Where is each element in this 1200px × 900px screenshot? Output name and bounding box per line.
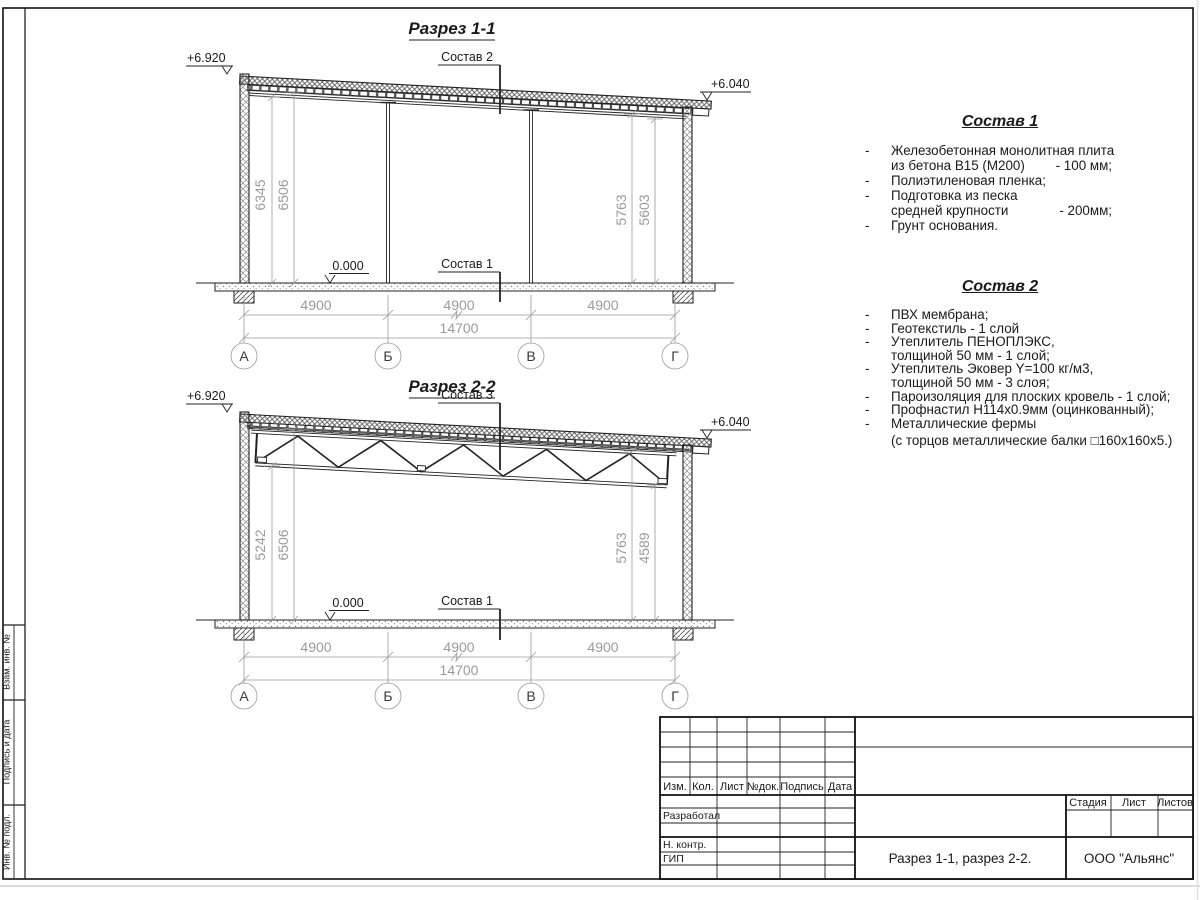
- note-line: -Геотекстиль - 1 слой: [830, 322, 1170, 336]
- tb-izm: Изм.: [663, 781, 687, 793]
- section2-floor: [196, 620, 734, 640]
- span-dim-2: 4900: [443, 639, 474, 655]
- elev-right-value: +6.040: [711, 415, 750, 429]
- tb-podpis: Подпись: [780, 781, 824, 793]
- dim-6506: 6506: [275, 529, 291, 560]
- title-block: Изм. Кол. Лист №док. Подпись Дата Разраб…: [660, 717, 1193, 879]
- note-line: -Грунт основания.: [830, 218, 1170, 233]
- span-dim-3: 4900: [587, 297, 618, 313]
- section1-zero-mark: 0.000: [325, 259, 369, 283]
- notes-sostav-1: Состав 1 -Железобетонная монолитная плит…: [830, 113, 1170, 233]
- roof-callout-text: Состав 3: [441, 388, 493, 402]
- span-dim-1: 4900: [300, 639, 331, 655]
- section1-roof: [239, 76, 711, 120]
- dim-5763: 5763: [613, 194, 629, 225]
- side-label-inv: Инв. № подл.: [2, 814, 12, 870]
- note-line: -Металлические фермы: [830, 417, 1170, 431]
- axis-b: Б: [383, 688, 392, 704]
- axis-a: А: [239, 688, 249, 704]
- dim-5603: 5603: [636, 194, 652, 225]
- axis-a: А: [239, 348, 249, 364]
- tb-stadia: Стадия: [1069, 797, 1107, 809]
- note-line: толщиной 50 мм - 3 слоя;: [830, 376, 1170, 390]
- section1-columns: [380, 103, 539, 284]
- axis-v: В: [526, 348, 535, 364]
- tb-list: Лист: [720, 781, 744, 793]
- note-line: -Утеплитель Эковер Y=100 кг/м3,: [830, 362, 1170, 376]
- section-1-1: Разрез 1-1: [186, 19, 751, 369]
- dim-6345: 6345: [252, 179, 268, 210]
- section1-elevation-right: +6.040: [700, 77, 751, 100]
- side-label-vzam: Взам. инв. №: [2, 634, 12, 690]
- notes2-title: Состав 2: [830, 278, 1170, 296]
- floor-callout-text: Состав 1: [441, 257, 493, 271]
- note-line: -Железобетонная монолитная плита: [830, 143, 1170, 158]
- notes-sostav-2: Состав 2 -ПВХ мембрана; -Геотекстиль - 1…: [830, 278, 1170, 448]
- note-line: (с торцов металлические балки □160х160х5…: [830, 434, 1170, 448]
- span-dim-1: 4900: [300, 297, 331, 313]
- dim-6506: 6506: [275, 179, 291, 210]
- notes1-title: Состав 1: [830, 113, 1170, 131]
- elev-right-value: +6.040: [711, 77, 750, 91]
- drawing-sheet: Взам. инв. № Подпись и дата Инв. № подл.…: [0, 0, 1200, 900]
- dim-5763: 5763: [613, 532, 629, 563]
- dim-5242: 5242: [252, 529, 268, 560]
- note-line: -ПВХ мембрана;: [830, 308, 1170, 322]
- span-dim-3: 4900: [587, 639, 618, 655]
- section2-elevation-right: +6.040: [700, 415, 751, 438]
- section-2-2: Разрез 2-2: [186, 377, 751, 709]
- dim-4589: 4589: [636, 532, 652, 563]
- section2-floor-callout: Состав 1: [438, 594, 500, 640]
- axis-v: В: [526, 688, 535, 704]
- note-line: -Полиэтиленовая пленка;: [830, 173, 1170, 188]
- zero-mark-value: 0.000: [332, 259, 363, 273]
- section1-elevation-left: +6.920: [186, 51, 233, 74]
- section1-wall-right: [683, 107, 692, 283]
- tb-gip: ГИП: [663, 853, 684, 865]
- note-line: средней крупности- 200мм;: [830, 203, 1170, 218]
- section2-bottom-dims: 4900 4900 4900 14700: [239, 632, 680, 685]
- note-line: -Пароизоляция для плоских кровель - 1 сл…: [830, 390, 1170, 404]
- axis-g: Г: [671, 688, 679, 704]
- tb-sheet: Лист: [1122, 797, 1146, 809]
- floor-callout-text: Состав 1: [441, 594, 493, 608]
- section1-axes: А Б В Г: [231, 343, 688, 369]
- tb-sheets: Листов: [1157, 797, 1193, 809]
- side-label-podpis: Подпись и дата: [2, 720, 12, 785]
- total-dim: 14700: [440, 662, 479, 678]
- tb-ndok: №док.: [747, 781, 779, 793]
- elev-left-value: +6.920: [187, 389, 226, 403]
- note-line: -Подготовка из песка: [830, 188, 1170, 203]
- axis-g: Г: [671, 348, 679, 364]
- tb-nkontr: Н. контр.: [663, 839, 706, 851]
- total-dim: 14700: [440, 320, 479, 336]
- tb-data: Дата: [828, 781, 853, 793]
- tb-kol: Кол.: [692, 781, 714, 793]
- section1-bottom-dims: 4900 4900 4900 14700: [239, 295, 680, 343]
- zero-mark-value: 0.000: [332, 596, 363, 610]
- section2-elevation-left: +6.920: [186, 389, 233, 412]
- tb-razrabotal: Разработал: [663, 810, 720, 822]
- elev-left-value: +6.920: [187, 51, 226, 65]
- section1-wall-left: [240, 74, 249, 283]
- section2-wall-right: [683, 445, 692, 620]
- axis-b: Б: [383, 348, 392, 364]
- roof-callout-text: Состав 2: [441, 50, 493, 64]
- section2-wall-left: [240, 412, 249, 620]
- note-line: -Утеплитель ПЕНОПЛЭКС,: [830, 335, 1170, 349]
- tb-company: ООО "Альянс": [1084, 851, 1174, 866]
- note-line: толщиной 50 мм - 1 слой;: [830, 349, 1170, 363]
- tb-doc-title: Разрез 1-1, разрез 2-2.: [889, 851, 1032, 866]
- section2-axes: А Б В Г: [231, 683, 688, 709]
- side-strip: Взам. инв. № Подпись и дата Инв. № подл.: [2, 625, 26, 879]
- section2-roof: [237, 414, 711, 490]
- section2-zero-mark: 0.000: [325, 596, 369, 620]
- note-line: -Профнастил Н114х0.9мм (оцинкованный);: [830, 403, 1170, 417]
- section1-floor-callout: Состав 1: [438, 257, 500, 302]
- note-line: из бетона В15 (М200)- 100 мм;: [830, 158, 1170, 173]
- span-dim-2: 4900: [443, 297, 474, 313]
- section1-title: Разрез 1-1: [408, 19, 495, 38]
